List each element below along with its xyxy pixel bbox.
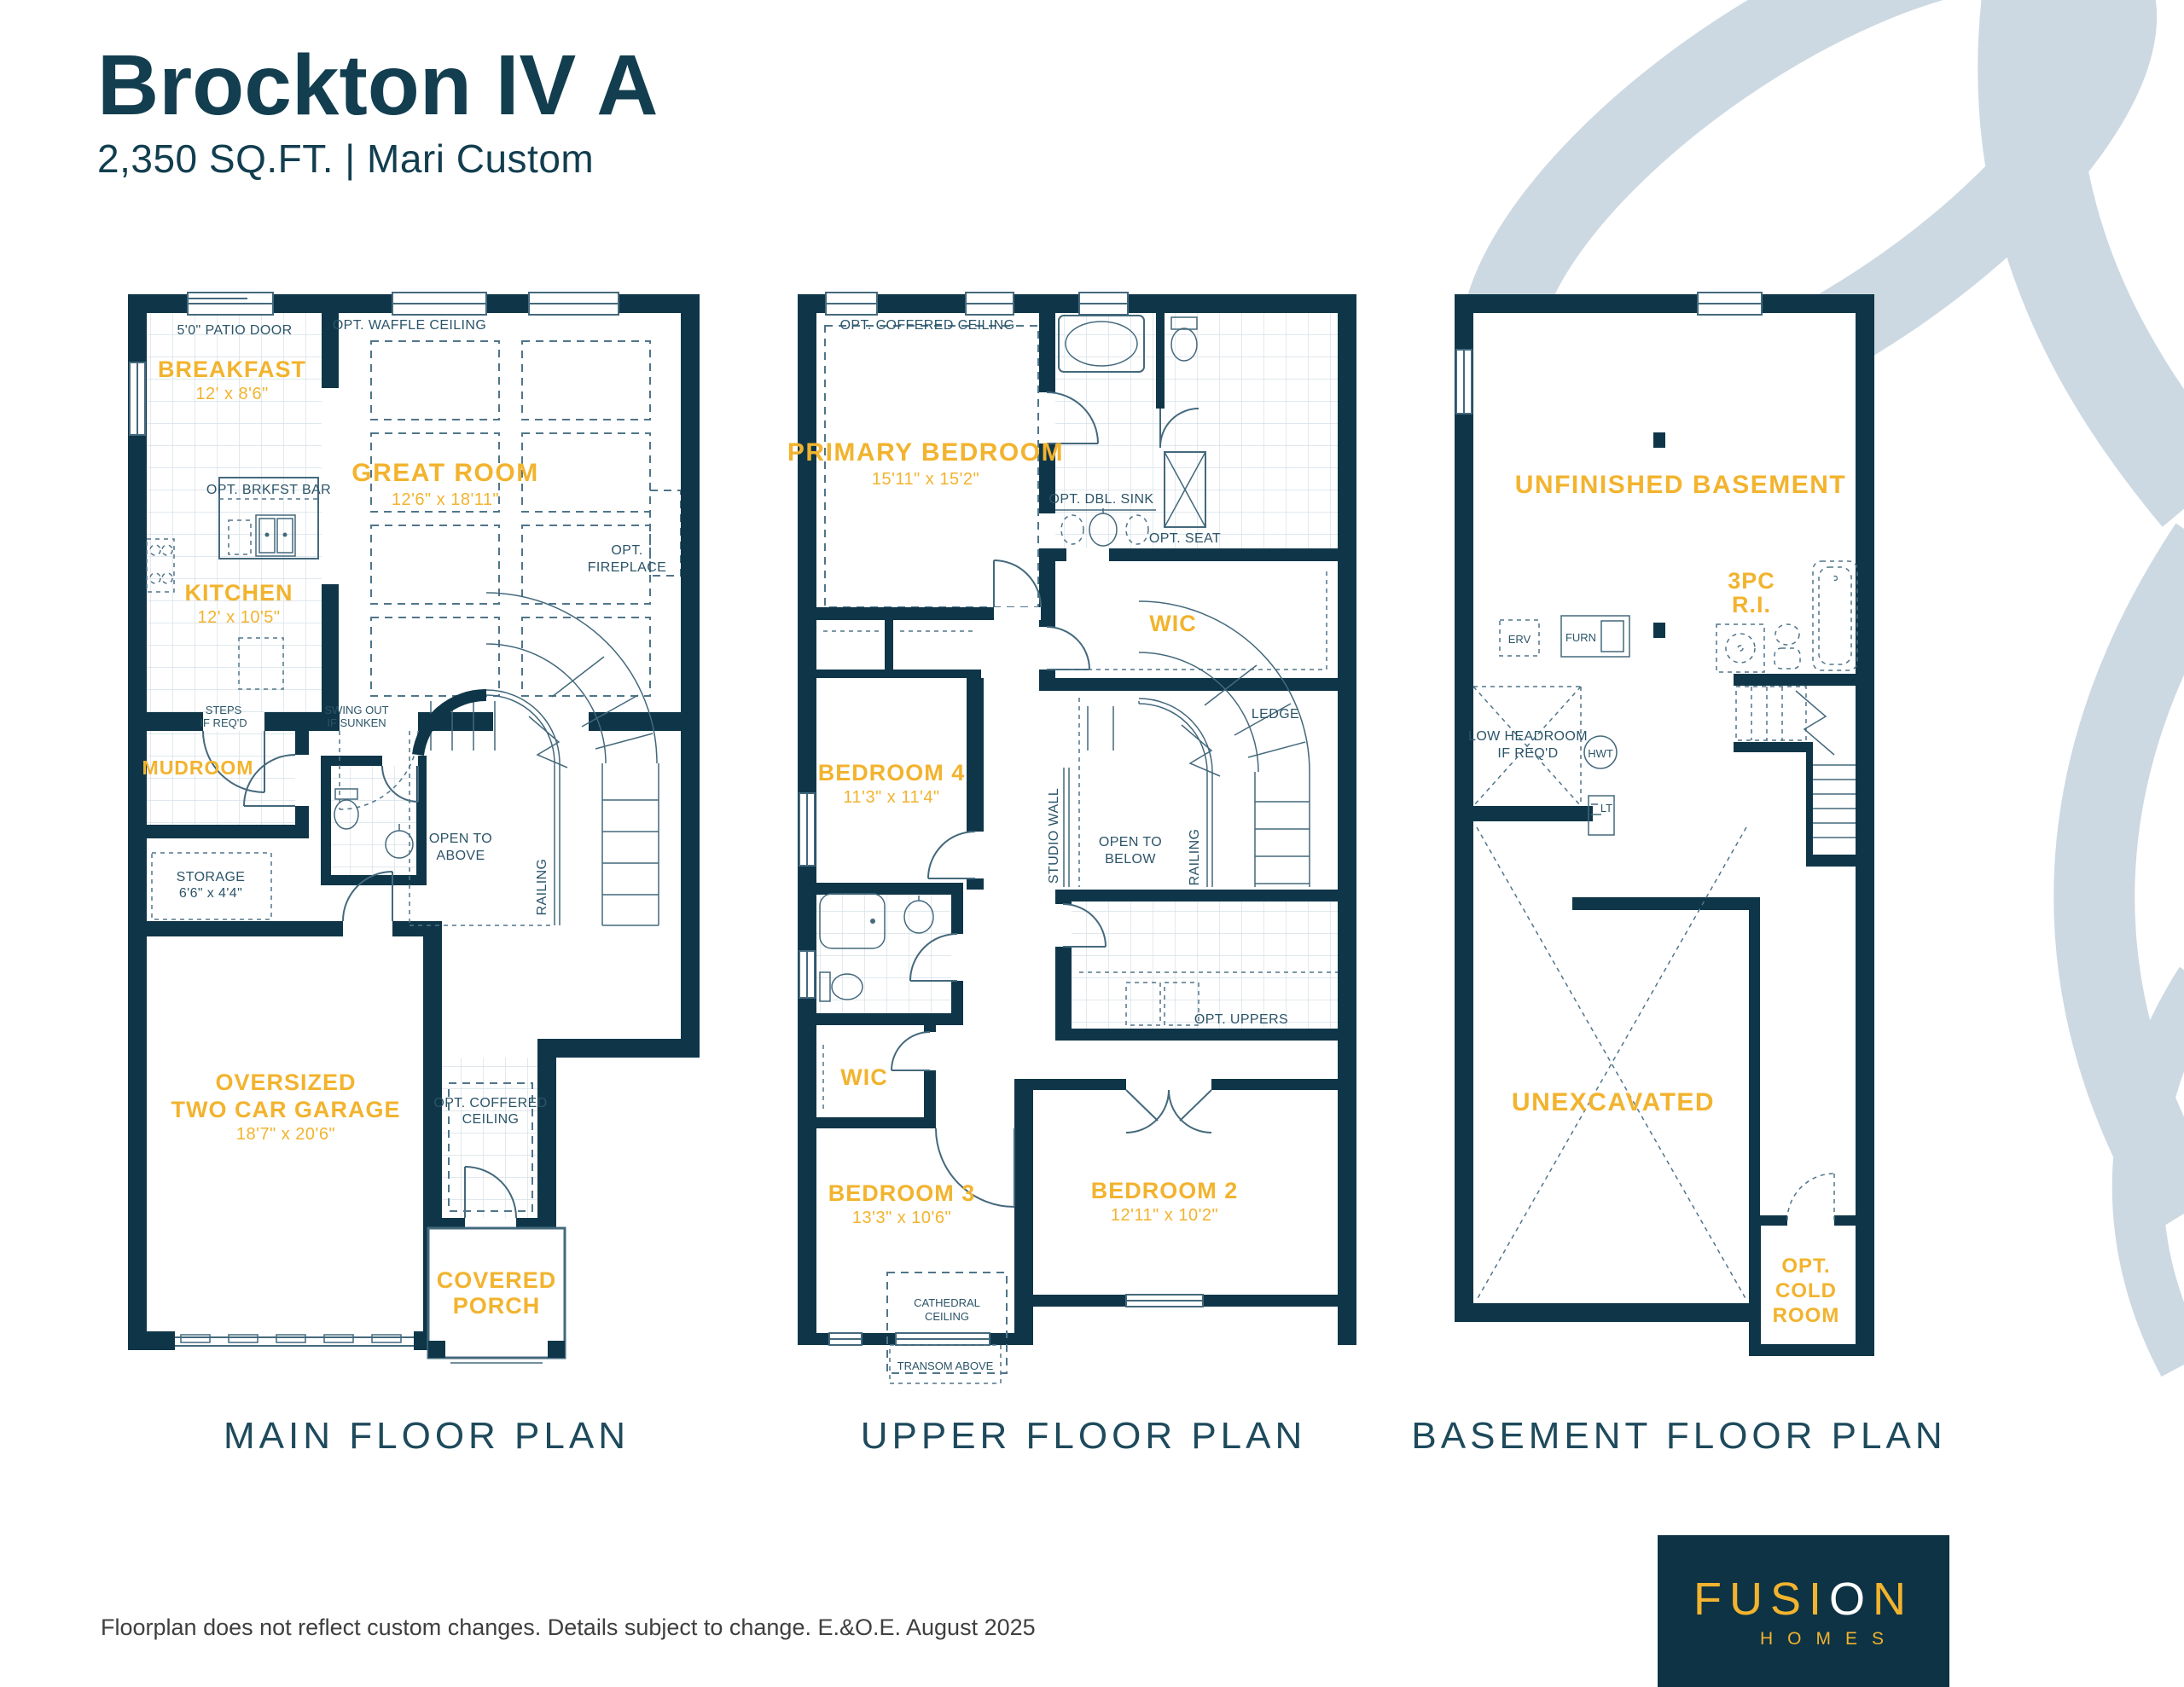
page-header: Brockton IV A 2,350 SQ.FT. | Mari Custom [97, 41, 658, 182]
label-ledge: LEDGE [1252, 707, 1299, 722]
label-garage-2: TWO CAR GARAGE [171, 1097, 401, 1122]
laundry-floor [1072, 901, 1338, 1029]
label-opt-uppers: OPT. UPPERS [1194, 1012, 1288, 1027]
label-garage-dim: 18'7" x 20'6" [236, 1125, 335, 1144]
label-fireplace-2: FIREPLACE [588, 560, 667, 575]
floorplan-sheet: Brockton IV A 2,350 SQ.FT. | Mari Custom [0, 0, 2184, 1687]
label-bedroom3: BEDROOM 3 [828, 1180, 976, 1206]
disclaimer-text: Floorplan does not reflect custom change… [101, 1615, 1036, 1641]
label-transom: TRANSOM ABOVE [897, 1359, 994, 1372]
caption-main: MAIN FLOOR PLAN [224, 1415, 630, 1457]
label-bedroom4: BEDROOM 4 [818, 760, 966, 786]
label-3pc-1: 3PC [1728, 568, 1775, 594]
upper-floor-plan: OPT. COFFERED CEILING PRIMARY BEDROOM 15… [798, 290, 1378, 1467]
label-kitchen: KITCHEN [185, 580, 293, 606]
post [1653, 432, 1665, 448]
label-cold-3: ROOM [1773, 1304, 1840, 1327]
logo-part1: FUSI [1693, 1574, 1829, 1625]
label-bedroom4-dim: 11'3" x 11'4" [843, 788, 939, 807]
caption-upper: UPPER FLOOR PLAN [861, 1415, 1307, 1457]
label-patio-door: 5'0" PATIO DOOR [177, 323, 292, 338]
label-erv: ERV [1508, 633, 1531, 646]
label-porch-1: COVERED [437, 1267, 557, 1293]
label-garage-1: OVERSIZED [215, 1070, 356, 1095]
label-wic-primary: WIC [1149, 611, 1196, 636]
label-wic2: WIC [840, 1064, 887, 1090]
label-waffle: OPT. WAFFLE CEILING [333, 318, 486, 333]
label-mudroom: MUDROOM [142, 757, 254, 779]
label-open-above-1: OPEN TO [429, 832, 492, 846]
foyer-floor [442, 1058, 537, 1218]
logo-o: O [1829, 1574, 1873, 1625]
basement-floor-plan: UNFINISHED BASEMENT 3PC R.I. ERV FURN LO… [1455, 290, 1932, 1467]
label-open-below-1: OPEN TO [1099, 835, 1162, 849]
logo-homes: HOMES [1760, 1629, 1898, 1649]
label-railing: RAILING [1188, 829, 1202, 886]
label-unfinished: UNFINISHED BASEMENT [1515, 471, 1847, 499]
label-great-room: GREAT ROOM [351, 459, 538, 487]
label-breakfast-dim: 12' x 8'6" [195, 385, 268, 403]
label-dbl-sink: OPT. DBL. SINK [1049, 492, 1154, 507]
label-studio-wall: STUDIO WALL [1047, 788, 1061, 884]
label-fireplace-1: OPT. [611, 543, 642, 558]
label-primary: PRIMARY BEDROOM [787, 438, 1064, 467]
label-coffered-1: OPT. COFFERED [433, 1096, 547, 1110]
label-storage: STORAGE [177, 870, 246, 884]
label-great-room-dim: 12'6" x 18'11" [392, 490, 499, 509]
post [1653, 623, 1665, 638]
label-low-2: IF REQ'D [1497, 746, 1558, 761]
label-coffered: OPT. COFFERED CEILING [840, 318, 1015, 333]
logo-wordmark: FUSION [1693, 1573, 1914, 1626]
label-low-1: LOW HEADROOM [1468, 729, 1588, 744]
label-hwt: HWT [1588, 747, 1613, 760]
label-porch-2: PORCH [453, 1293, 541, 1319]
label-unexcavated: UNEXCAVATED [1512, 1088, 1715, 1116]
plan-subtitle: 2,350 SQ.FT. | Mari Custom [97, 136, 658, 182]
label-swing-2: IF SUNKEN [327, 716, 386, 729]
caption-basement: BASEMENT FLOOR PLAN [1411, 1415, 1946, 1457]
label-open-below-2: BELOW [1105, 852, 1156, 867]
plan-title: Brockton IV A [97, 41, 658, 130]
label-furn: FURN [1565, 631, 1596, 644]
label-lt: LT [1600, 802, 1612, 815]
label-swing-1: SWING OUT [324, 704, 388, 716]
logo-part2: N [1873, 1574, 1914, 1625]
fusion-homes-logo: FUSION HOMES [1658, 1535, 1949, 1687]
label-primary-dim: 15'11" x 15'2" [872, 470, 979, 489]
label-bedroom3-dim: 13'3" x 10'6" [852, 1209, 951, 1227]
label-coffered-2: CEILING [462, 1112, 520, 1127]
label-open-above-2: ABOVE [436, 849, 485, 863]
label-kitchen-dim: 12' x 10'5" [198, 608, 281, 627]
label-cathedral-1: CATHEDRAL [914, 1296, 980, 1309]
powder-floor [331, 766, 416, 875]
label-bedroom2-dim: 12'11" x 10'2" [1111, 1206, 1218, 1225]
main-floor-plan: 5'0" PATIO DOOR BREAKFAST 12' x 8'6" OPT… [128, 290, 725, 1467]
label-storage-dim: 6'6" x 4'4" [179, 886, 242, 901]
label-steps-1: STEPS [206, 704, 242, 716]
label-3pc-2: R.I. [1732, 592, 1771, 617]
label-cold-2: COLD [1775, 1279, 1837, 1302]
label-cold-1: OPT. [1781, 1255, 1830, 1278]
label-railing: RAILING [535, 859, 549, 916]
label-opt-seat: OPT. SEAT [1149, 531, 1221, 546]
label-brkfst-bar: OPT. BRKFST BAR [206, 483, 331, 497]
label-bedroom2: BEDROOM 2 [1091, 1178, 1239, 1203]
label-cathedral-2: CEILING [925, 1310, 969, 1323]
label-steps-2: IF REQ'D [200, 716, 247, 729]
label-breakfast: BREAKFAST [158, 357, 306, 382]
